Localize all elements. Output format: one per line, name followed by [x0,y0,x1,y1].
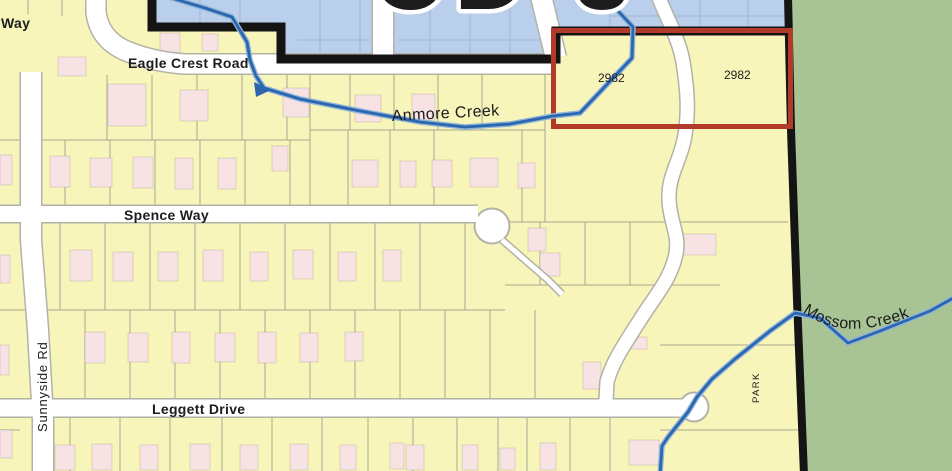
building-footprint [160,33,180,53]
building-footprint [140,445,158,470]
building-footprint [172,332,190,363]
building-footprint [240,445,258,470]
building-footprint [390,443,404,469]
park-label: PARK [751,372,762,403]
building-footprint [345,332,363,361]
building-footprint [518,163,535,188]
building-footprint [190,444,210,470]
building-footprint [180,90,208,121]
building-footprint [0,155,12,185]
building-footprint [55,445,75,470]
building-footprint [50,156,70,187]
building-footprint [680,234,716,255]
building-footprint [500,448,515,470]
building-footprint [352,160,378,187]
building-footprint [406,445,424,470]
building-footprint [58,57,86,76]
building-footprint [218,158,236,189]
building-footprint [383,250,401,281]
parcel-id-left: 2982 [598,71,625,85]
cd-zone-label: CD 3 [372,0,640,31]
building-footprint [629,440,659,465]
sunnyside-road-label: Sunnyside Rd [35,341,50,432]
parcel-id-right: 2982 [724,68,751,82]
building-footprint [293,250,313,279]
building-footprint [290,444,308,470]
building-footprint [540,443,556,470]
spence-culdesac [476,210,509,243]
building-footprint [175,158,193,189]
building-footprint [113,252,133,281]
building-footprint [215,333,235,362]
eagle-crest-road-label: Eagle Crest Road [128,55,249,71]
building-footprint [528,228,546,251]
building-footprint [128,333,148,362]
building-footprint [272,146,288,171]
building-footprint [340,445,356,470]
spence-way-label: Spence Way [124,207,209,223]
park-greenspace-area [789,0,952,471]
leggett-drive-label: Leggett Drive [152,401,245,417]
building-footprint [85,332,105,363]
building-footprint [0,345,9,375]
building-footprint [0,430,12,458]
building-footprint [462,445,478,470]
building-footprint [70,250,92,281]
building-footprint [202,34,218,51]
building-footprint [203,250,223,281]
building-footprint [338,252,356,281]
building-footprint [90,158,112,187]
building-footprint [0,255,10,283]
building-footprint [258,332,276,363]
zoning-map: CD 3 Eagle Crest Road Spence Way Leggett… [0,0,952,471]
building-footprint [470,158,498,187]
building-footprint [300,333,318,362]
building-footprint [432,160,452,187]
building-footprint [158,252,178,281]
map-canvas: CD 3 Eagle Crest Road Spence Way Leggett… [0,0,952,471]
building-footprint [108,84,146,126]
building-footprint [250,252,268,281]
building-footprint [400,161,416,187]
building-footprint [133,157,153,188]
building-footprint [92,444,112,470]
building-footprint [583,362,601,389]
way-partial-label: Way [1,15,30,31]
